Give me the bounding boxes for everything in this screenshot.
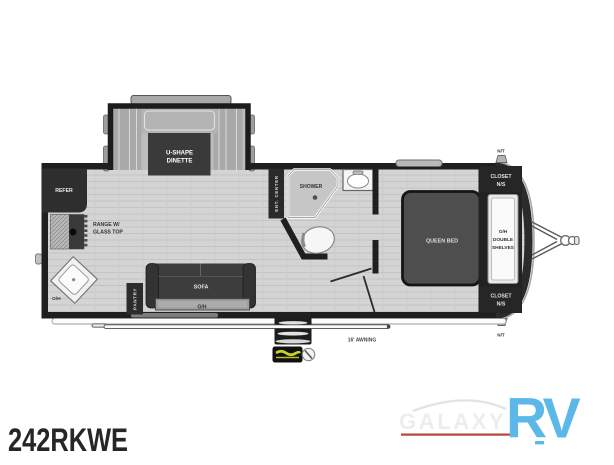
svg-text:RV: RV bbox=[506, 387, 581, 451]
svg-text:242RKWE: 242RKWE bbox=[8, 422, 128, 458]
svg-text:SOFA: SOFA bbox=[194, 285, 209, 291]
svg-text:DINETTE: DINETTE bbox=[167, 159, 193, 165]
svg-text:N/T: N/T bbox=[497, 333, 505, 338]
svg-text:N/T: N/T bbox=[497, 149, 505, 154]
svg-text:CLOSET: CLOSET bbox=[490, 174, 512, 180]
svg-text:SHOWER: SHOWER bbox=[300, 184, 323, 190]
svg-text:DOUBLE: DOUBLE bbox=[493, 237, 514, 243]
svg-text:O/H: O/H bbox=[499, 229, 508, 235]
svg-text:O/H: O/H bbox=[52, 296, 61, 302]
svg-text:RANGE W/: RANGE W/ bbox=[93, 222, 120, 228]
svg-text:O/H: O/H bbox=[198, 304, 207, 310]
svg-text:16' AWNING: 16' AWNING bbox=[348, 338, 377, 344]
svg-text:N/S: N/S bbox=[497, 182, 506, 188]
svg-text:CLOSET: CLOSET bbox=[490, 294, 512, 300]
svg-text:QUEEN BED: QUEEN BED bbox=[426, 239, 458, 245]
svg-text:ENT. CENTER: ENT. CENTER bbox=[274, 175, 279, 212]
svg-text:REFER: REFER bbox=[55, 188, 73, 194]
svg-text:U-SHAPE: U-SHAPE bbox=[166, 151, 193, 157]
svg-text:SHELVES: SHELVES bbox=[492, 245, 515, 251]
svg-text:GLASS TOP: GLASS TOP bbox=[93, 230, 123, 236]
svg-text:N/S: N/S bbox=[497, 302, 506, 308]
svg-text:PANTRY: PANTRY bbox=[132, 288, 137, 310]
svg-text:GALAXY: GALAXY bbox=[399, 409, 506, 434]
